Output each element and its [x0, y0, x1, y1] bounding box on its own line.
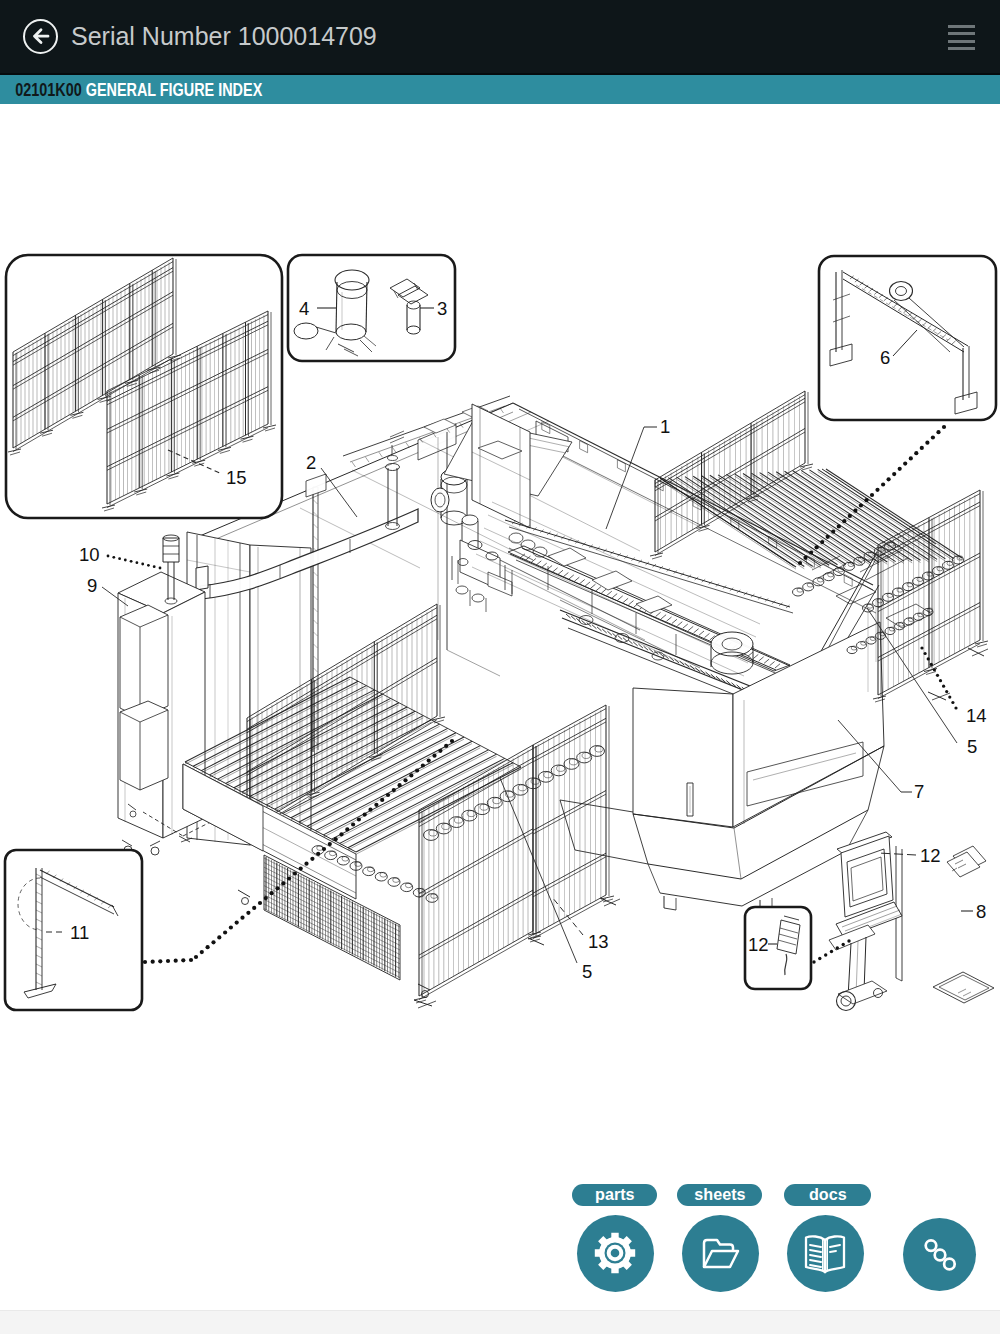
svg-text:12: 12 [920, 845, 941, 866]
svg-text:15: 15 [226, 467, 247, 488]
svg-text:11: 11 [70, 922, 89, 943]
svg-text:13: 13 [588, 931, 609, 952]
svg-text:12: 12 [748, 934, 769, 955]
svg-text:7: 7 [914, 781, 924, 802]
svg-text:6: 6 [880, 347, 890, 368]
svg-text:9: 9 [87, 575, 97, 596]
svg-text:5: 5 [582, 961, 592, 982]
svg-text:3: 3 [437, 298, 447, 319]
svg-text:4: 4 [299, 298, 309, 319]
svg-text:2: 2 [306, 452, 316, 473]
svg-text:1: 1 [660, 416, 670, 437]
svg-text:10: 10 [79, 544, 100, 565]
svg-text:14: 14 [966, 705, 987, 726]
svg-text:5: 5 [967, 736, 977, 757]
svg-text:8: 8 [976, 901, 986, 922]
